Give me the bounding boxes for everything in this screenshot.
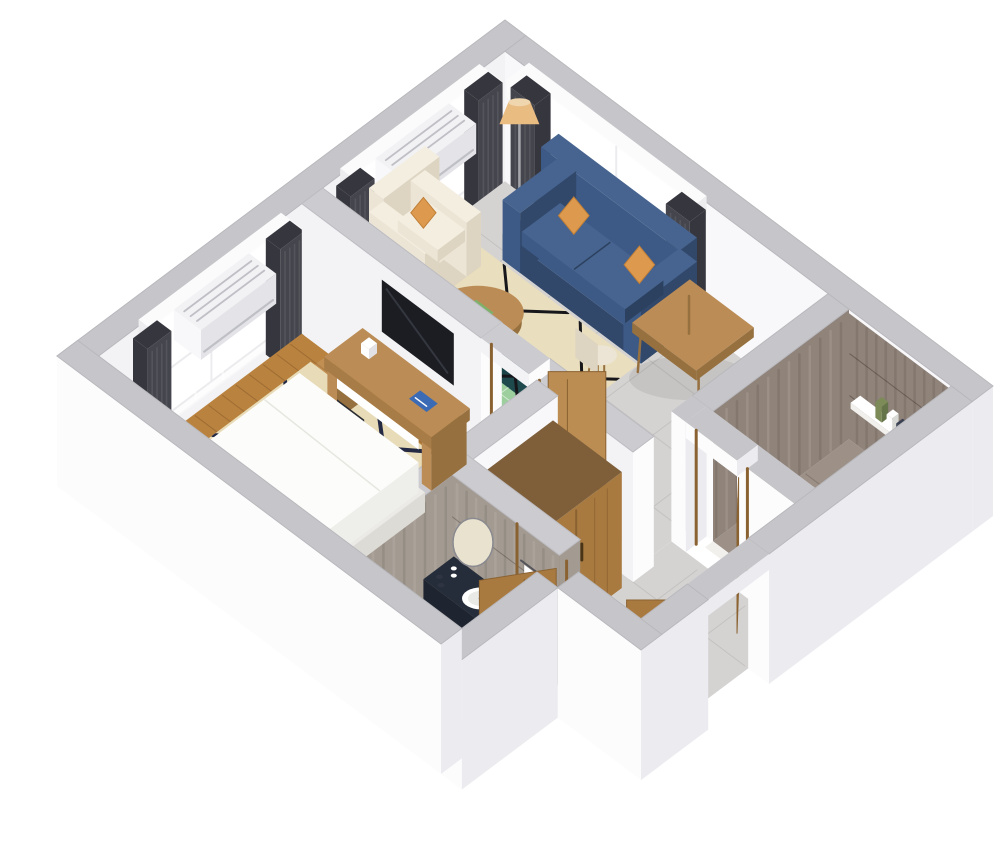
sw-wall-entry-se-face	[641, 634, 662, 780]
toiletry-dark	[436, 575, 443, 579]
lamp-shade-top	[508, 98, 530, 106]
armchair-arm-a-se-face	[467, 212, 481, 277]
toiletry-dark	[438, 583, 445, 587]
wall-a-east-se-face	[633, 436, 654, 582]
floor-plan-stage	[0, 0, 1000, 856]
toiletry-bottle	[451, 566, 457, 570]
floor-plan-3d-render	[0, 0, 1000, 856]
round-mirror	[453, 518, 493, 566]
shower-sw-wall-west-sw-face	[671, 411, 685, 552]
bottle-green	[875, 397, 888, 423]
ne-wall-se-face	[972, 386, 993, 532]
toiletry-bottle	[451, 574, 457, 578]
sw-wall-main-se-face	[441, 628, 462, 774]
